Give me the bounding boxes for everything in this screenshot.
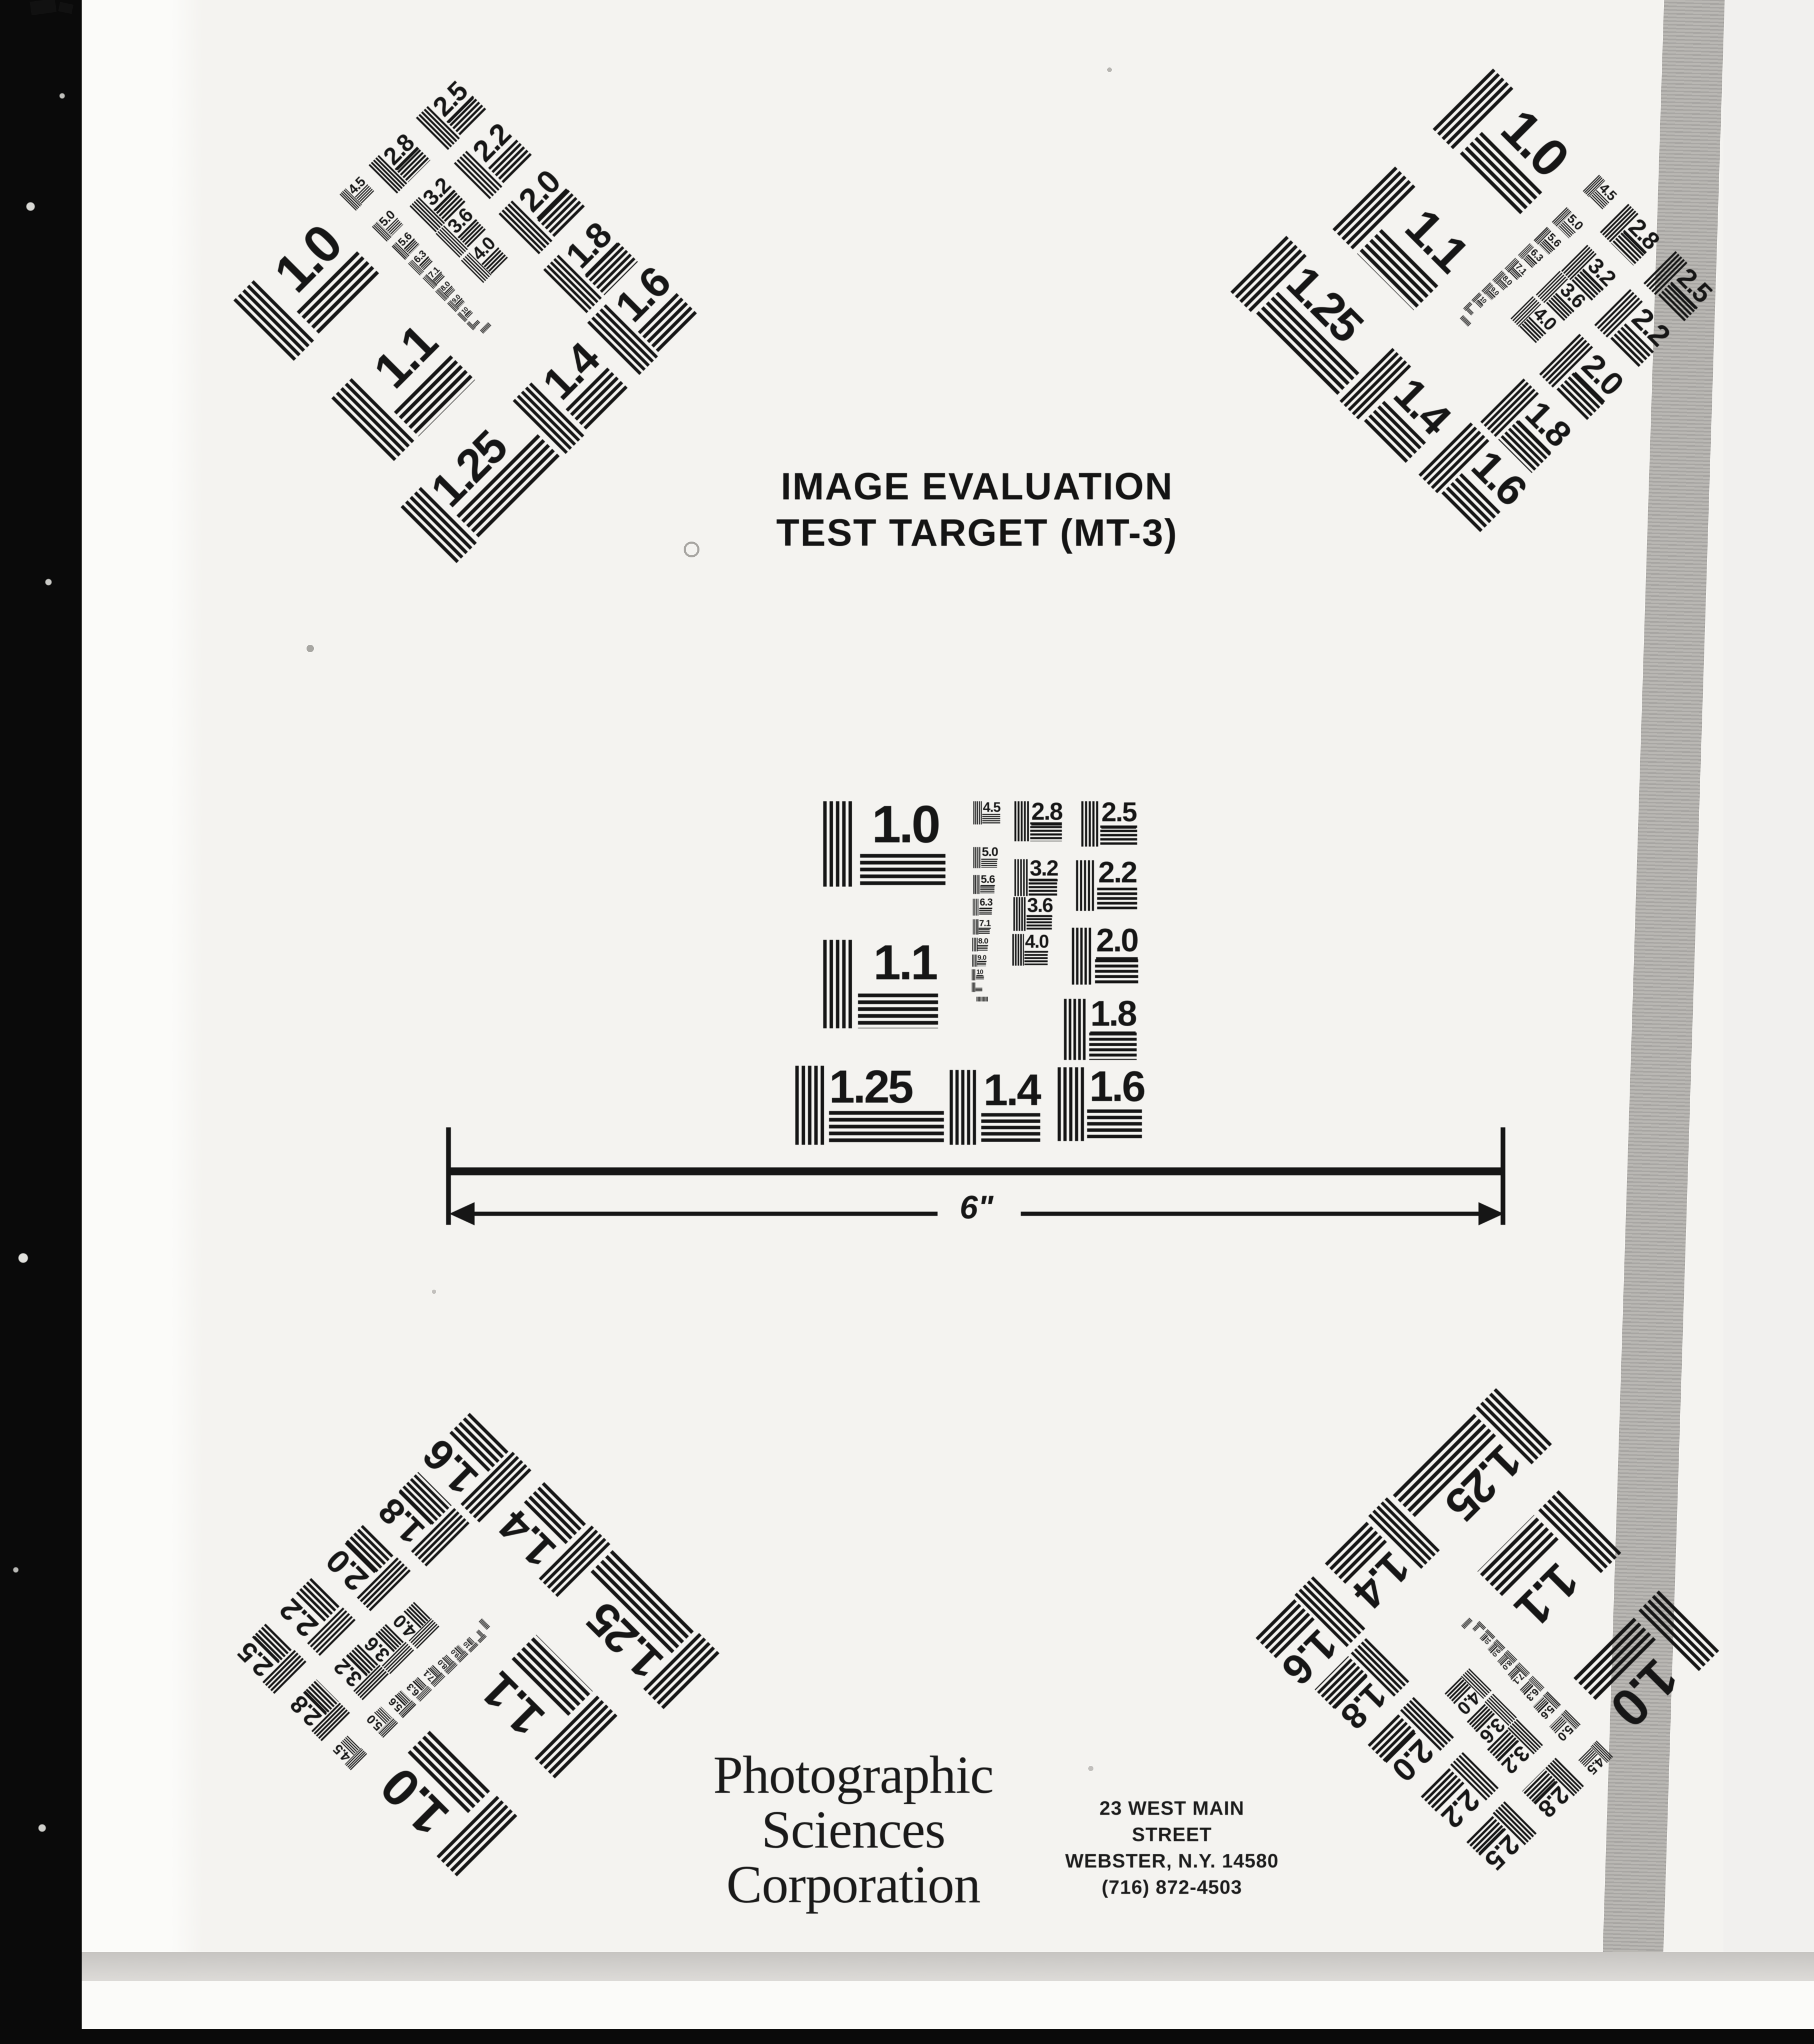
resolution-label: 1.1 <box>873 938 936 987</box>
resolution-label: 5.0 <box>982 846 998 860</box>
bars-horizontal <box>975 988 982 991</box>
arrow-right-icon <box>1478 1202 1504 1225</box>
scan-speck <box>432 1290 436 1294</box>
bars-horizontal <box>981 859 997 868</box>
bars-vertical <box>1081 801 1099 847</box>
resolution-label: 4.0 <box>1025 932 1048 952</box>
bars-vertical <box>823 801 854 887</box>
bars-horizontal <box>1472 1624 1480 1632</box>
bars-horizontal <box>829 1111 944 1145</box>
scan-speck <box>307 645 314 652</box>
bars-vertical <box>823 940 854 1028</box>
film-edge-bottom <box>0 2029 1814 2044</box>
resolution-label: 6.3 <box>980 898 992 909</box>
bars-vertical <box>977 997 988 1001</box>
bars-vertical <box>1072 928 1093 985</box>
bars-vertical <box>972 969 976 980</box>
bars-horizontal <box>980 886 994 893</box>
bars-vertical <box>1460 315 1472 327</box>
bars-horizontal <box>976 976 984 980</box>
bars-vertical <box>1014 859 1028 896</box>
resolution-label: 3.6 <box>1027 896 1052 917</box>
bars-vertical <box>973 919 979 935</box>
paper-edge-band-bottom <box>53 1952 1814 1981</box>
resolution-label: 2.5 <box>1101 799 1136 829</box>
resolution-label: 9.0 <box>978 954 987 962</box>
bars-vertical <box>478 1618 490 1630</box>
bars-vertical <box>973 801 982 824</box>
bars-horizontal <box>1024 951 1048 965</box>
bars-vertical <box>1076 860 1095 911</box>
bars-horizontal <box>1089 1033 1137 1060</box>
resolution-label: 5.6 <box>981 874 995 886</box>
scale-bar-label: 6" <box>960 1192 993 1224</box>
bars-horizontal <box>981 1113 1040 1145</box>
scale-bar-line <box>448 1167 1503 1175</box>
bars-horizontal <box>982 814 1000 824</box>
bars-horizontal <box>979 928 990 934</box>
resolution-label: 10 <box>977 969 983 976</box>
page-title: IMAGE EVALUATION TEST TARGET (MT-3) <box>735 464 1219 556</box>
bars-horizontal <box>860 854 945 887</box>
bars-vertical <box>1058 1067 1085 1141</box>
bars-vertical <box>1461 1618 1473 1629</box>
title-line-1: IMAGE EVALUATION <box>735 464 1219 510</box>
resolution-label: 1.0 <box>872 798 939 851</box>
bars-vertical <box>973 875 980 894</box>
bars-horizontal <box>979 908 992 915</box>
bars-horizontal <box>1087 1109 1142 1141</box>
scan-speck <box>1088 1766 1093 1771</box>
bars-vertical <box>480 322 491 333</box>
company-name: Photographic Sciences Corporation <box>690 1748 1017 1912</box>
bars-vertical <box>950 1070 979 1145</box>
scan-speck <box>684 542 699 557</box>
address-line-2: WEBSTER, N.Y. 14580 <box>1059 1848 1285 1874</box>
company-address: 23 WEST MAIN STREET WEBSTER, N.Y. 14580 … <box>1059 1795 1285 1901</box>
resolution-label: 2.8 <box>1031 799 1062 826</box>
bars-horizontal <box>1027 915 1052 931</box>
bars-vertical <box>1064 999 1087 1060</box>
bars-vertical <box>972 982 975 992</box>
arrow-left-icon <box>449 1202 475 1225</box>
title-line-2: TEST TARGET (MT-3) <box>735 510 1219 556</box>
company-line-1: Photographic <box>690 1748 1017 1803</box>
scanned-page: IMAGE EVALUATION TEST TARGET (MT-3) 1.01… <box>0 0 1814 2044</box>
resolution-label: 1.25 <box>829 1064 912 1110</box>
resolution-label: 2.0 <box>1096 925 1138 960</box>
test-target-center: 1.01.11.251.41.62.52.22.01.82.83.23.64.0… <box>821 788 1142 1146</box>
bars-vertical <box>1012 934 1024 966</box>
bars-horizontal <box>1029 879 1057 896</box>
bars-horizontal <box>977 961 986 966</box>
resolution-label: 1.6 <box>1089 1065 1144 1108</box>
bars-vertical <box>1014 801 1029 841</box>
bars-horizontal <box>1100 826 1137 847</box>
bars-horizontal <box>978 945 988 951</box>
company-line-3: Corporation <box>690 1858 1017 1912</box>
bars-vertical <box>1013 897 1026 931</box>
paper-bright-strip-bottom <box>0 1981 1814 2029</box>
bars-horizontal <box>1095 959 1138 985</box>
address-line-1: 23 WEST MAIN STREET <box>1059 1795 1285 1848</box>
company-line-2: Sciences <box>690 1803 1017 1858</box>
film-edge-left <box>0 0 82 2044</box>
bars-vertical <box>973 847 981 868</box>
resolution-label: 1.8 <box>1090 996 1136 1035</box>
bars-vertical <box>972 955 977 967</box>
resolution-label: 4.5 <box>983 800 1000 815</box>
bars-vertical <box>795 1066 826 1145</box>
scan-speck <box>1107 67 1112 72</box>
bars-horizontal <box>858 994 938 1028</box>
scale-bar-arrow-line-right <box>1021 1212 1483 1216</box>
resolution-label: 2.2 <box>1098 858 1136 890</box>
resolution-label: 1.4 <box>983 1068 1040 1112</box>
bars-horizontal <box>1097 888 1137 911</box>
bars-vertical <box>973 899 979 916</box>
scale-bar-arrow-line-left <box>470 1212 938 1216</box>
bars-horizontal <box>473 320 480 327</box>
bars-vertical <box>972 938 978 951</box>
bars-horizontal <box>1030 822 1062 841</box>
bars-horizontal <box>1466 308 1474 316</box>
address-line-3: (716) 872-4503 <box>1059 1874 1285 1901</box>
resolution-label: 3.2 <box>1030 857 1058 881</box>
